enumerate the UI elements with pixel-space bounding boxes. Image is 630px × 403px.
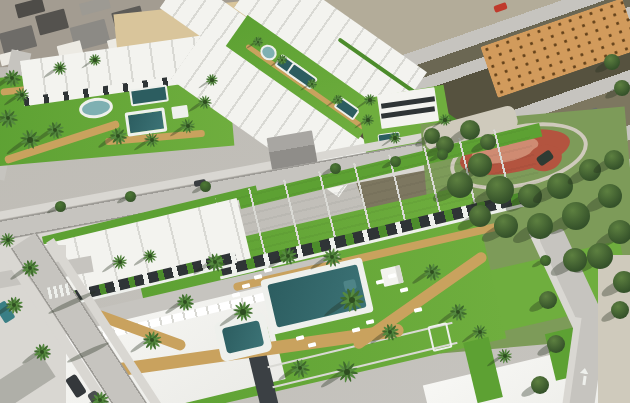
pine-tree [604,150,624,170]
street-tree [330,163,341,174]
palm-core [503,354,507,358]
palm-core [148,254,152,258]
street-tree [390,156,401,167]
palm-core [478,330,482,334]
pine-tree [469,205,491,227]
road-arrow-stem [582,375,586,384]
pine-tree [547,335,565,353]
palm-core [6,238,10,242]
pine-tree [424,128,440,144]
pine-tree [480,134,496,150]
palm-core [240,309,245,314]
palm-core [93,58,96,61]
street-tree [125,191,136,202]
pine-tree [539,291,557,309]
street-tree [437,149,448,160]
street-tree [540,255,551,266]
pine-tree [604,54,620,70]
pine-tree [587,243,613,269]
aerial-development-render [0,0,630,403]
palm-core [210,78,213,81]
pine-tree [447,172,473,198]
palm-core [344,369,350,375]
pine-tree [486,176,514,204]
palm-core [150,138,154,142]
pine-tree [562,202,590,230]
palm-core [203,100,207,104]
pine-tree [460,120,480,140]
pool-cabana [171,105,189,119]
pine-tree [611,301,629,319]
pine-tree [494,214,518,238]
street-tree [200,181,211,192]
palm-core [368,98,371,101]
palm-core [118,260,122,264]
palm-core [393,136,396,139]
pine-tree [531,376,549,394]
palm-core [27,137,32,142]
pine-tree [608,220,630,244]
palm-core [58,66,62,70]
street-tree [55,201,66,212]
palm-core [366,118,369,121]
pine-tree [468,153,492,177]
pine-tree [613,271,630,293]
pine-tree [527,213,553,239]
pine-tree [614,80,630,96]
pine-tree [598,184,622,208]
pine-tree [563,248,587,272]
palm-core [186,124,190,128]
palm-core [20,93,24,97]
palm-core [443,118,446,121]
